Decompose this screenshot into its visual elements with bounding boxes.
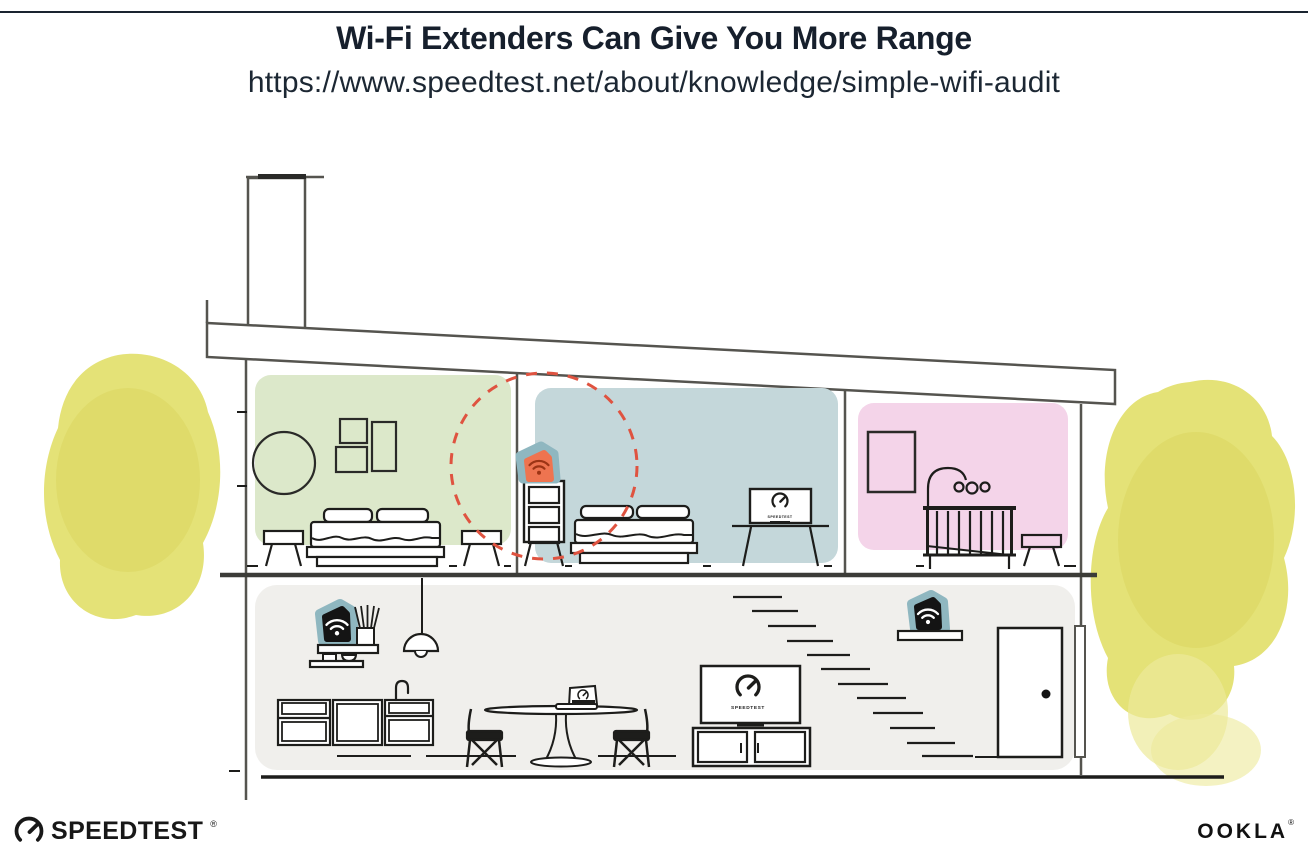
shelf-board xyxy=(310,661,363,667)
tv-cabinet xyxy=(693,728,810,766)
tv-screen-label: SPEEDTEST xyxy=(731,705,765,711)
infographic-page: Wi-Fi Extenders Can Give You More Range … xyxy=(0,0,1308,861)
ookla-wordmark: OOKLA xyxy=(1197,820,1288,843)
registered-mark: ® xyxy=(1288,818,1294,827)
speedtest-logo: SPEEDTEST® xyxy=(14,816,217,846)
foliage-right xyxy=(1091,380,1295,786)
tv-downstairs: SPEEDTEST xyxy=(693,666,810,766)
foliage-bottom xyxy=(1151,714,1261,786)
tv-screen-label: SPEEDTEST xyxy=(768,515,793,519)
shelf-board xyxy=(898,631,962,640)
foliage-shade xyxy=(56,388,200,572)
speedtest-wordmark: SPEEDTEST xyxy=(51,817,203,846)
chimney xyxy=(246,174,324,330)
shelf-board xyxy=(318,645,378,653)
door xyxy=(998,628,1062,757)
downspout xyxy=(1075,626,1085,757)
registered-mark: ® xyxy=(210,819,217,829)
wifi-extender-device xyxy=(520,446,556,479)
ookla-logo: OOKLA® xyxy=(1197,820,1294,844)
speedtest-gauge-icon xyxy=(14,816,44,846)
nursery-panel xyxy=(858,403,1068,550)
foliage-shade xyxy=(1118,432,1274,648)
nightstand xyxy=(264,531,303,566)
door-knob xyxy=(1042,690,1051,699)
house-illustration: SPEEDTEST xyxy=(0,0,1308,861)
foliage-left xyxy=(44,354,220,619)
crib xyxy=(923,508,1016,569)
